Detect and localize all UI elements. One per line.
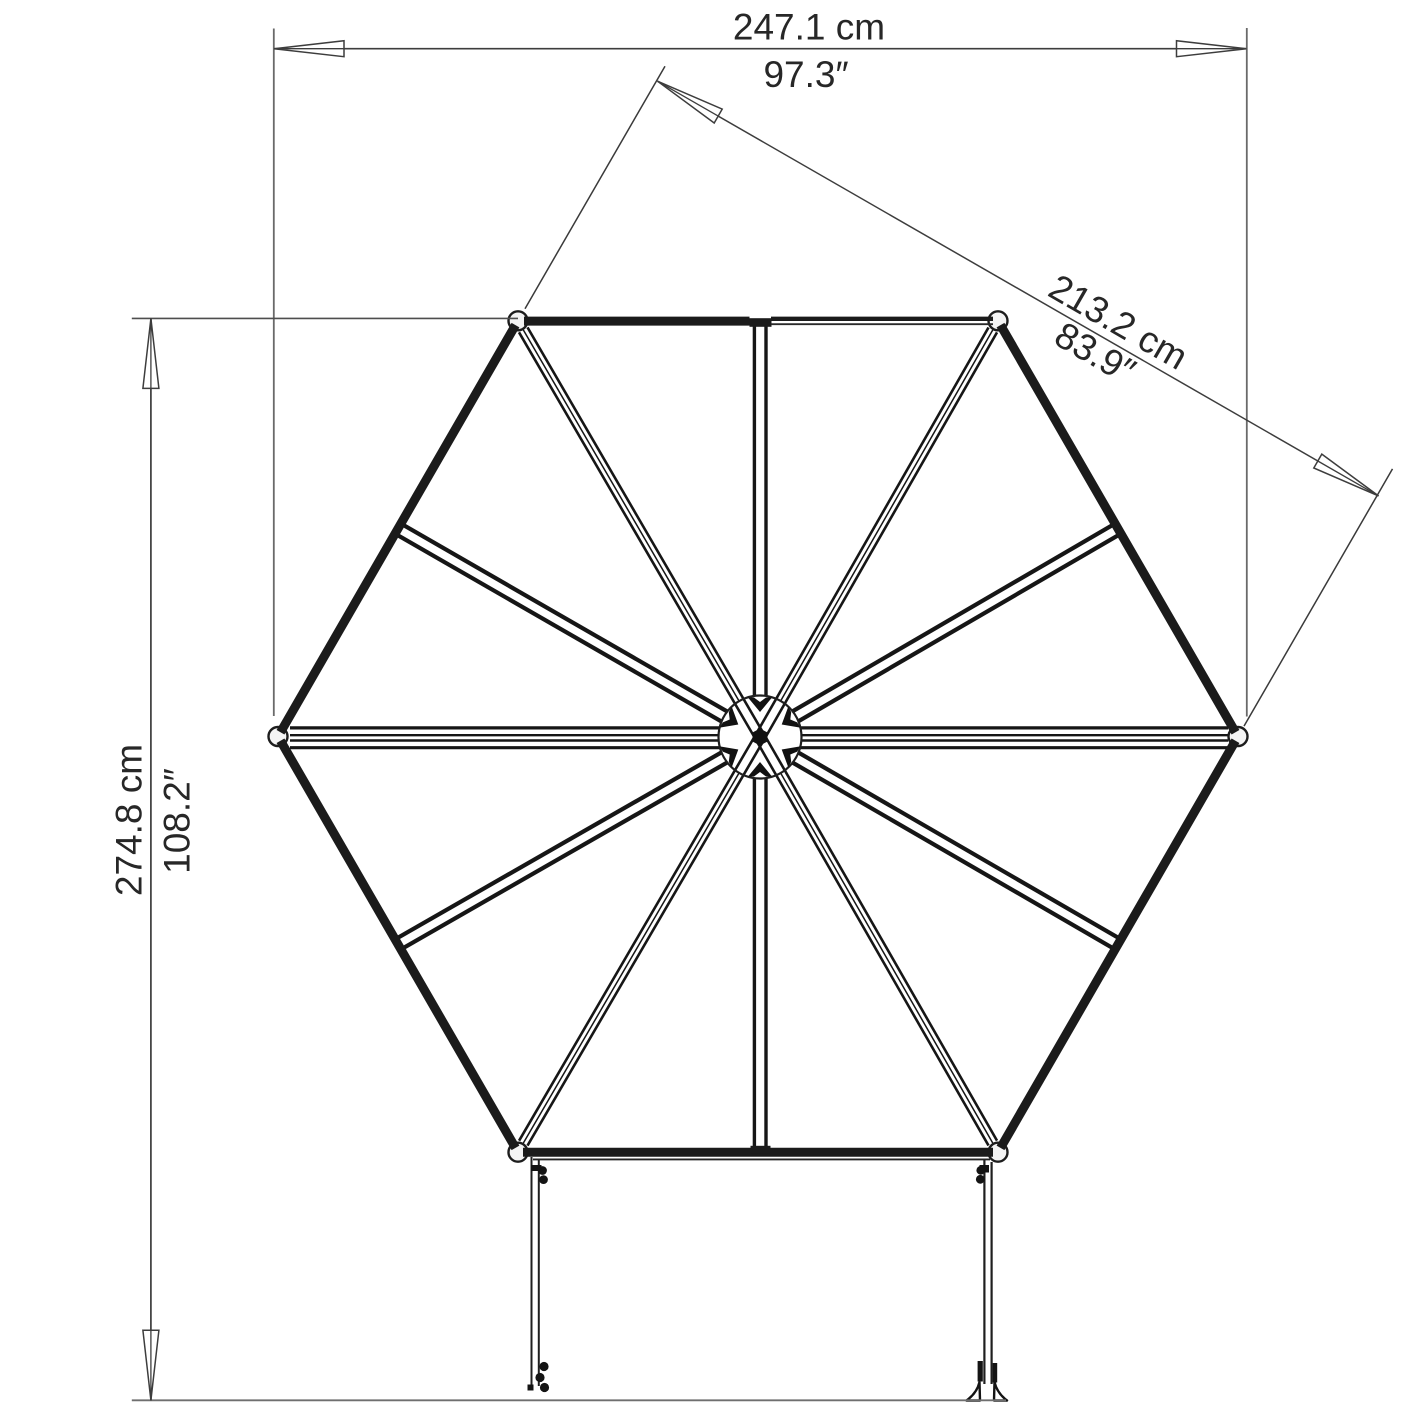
svg-text:97.3″: 97.3″ [763, 54, 848, 95]
svg-text:108.2″: 108.2″ [157, 768, 198, 874]
svg-text:274.8 cm: 274.8 cm [109, 744, 150, 896]
svg-text:247.1 cm: 247.1 cm [733, 7, 885, 48]
